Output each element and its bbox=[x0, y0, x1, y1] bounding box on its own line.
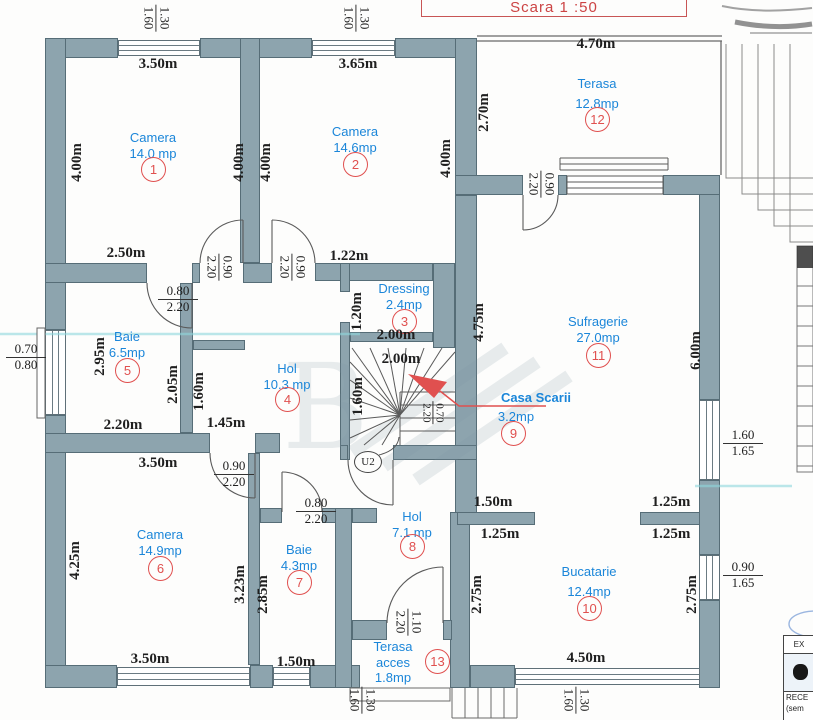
room-number-terasa-acces: 13 bbox=[425, 649, 450, 674]
stamp-ellipse bbox=[789, 611, 813, 637]
wall bbox=[470, 665, 515, 688]
dim-sufragerie-right: 6.00m bbox=[687, 318, 705, 382]
callout-door-camera6: 0.902.20 bbox=[214, 459, 254, 489]
wall bbox=[45, 415, 66, 688]
callout-door-camera1: 0.902.20 bbox=[202, 243, 236, 291]
dim-baie7-bottom: 1.50m bbox=[258, 654, 334, 671]
callout-door-sufragerie: 0.902.20 bbox=[524, 160, 558, 208]
wall bbox=[45, 665, 117, 688]
room-number-camera1: 1 bbox=[141, 157, 166, 182]
terrace-door-steps bbox=[560, 158, 668, 194]
dim-baie5-mid: 2.05m bbox=[164, 355, 182, 413]
room-number-bucatarie: 10 bbox=[577, 596, 602, 621]
room-number-sufragerie: 11 bbox=[586, 343, 611, 368]
dim-kitchen-right: 2.75m bbox=[683, 566, 701, 622]
dim-kitchen-left: 2.75m bbox=[468, 566, 486, 622]
dim-hol4-left: 1.60m bbox=[190, 365, 208, 417]
dim-baie5-left: 2.95m bbox=[91, 324, 109, 388]
dim-cam2-bottom: 1.22m bbox=[311, 248, 387, 265]
window bbox=[117, 667, 250, 686]
wall bbox=[45, 263, 147, 283]
wall bbox=[315, 263, 433, 281]
dim-dressing-left: 1.20m bbox=[348, 287, 366, 335]
room-number-camera6: 6 bbox=[148, 556, 173, 581]
stair-marker-u2: U2 bbox=[354, 451, 382, 473]
dim-cam6-left: 4.25m bbox=[66, 528, 84, 592]
dim-cam2-left: 4.00m bbox=[257, 130, 275, 194]
callout-door-camera2: 0.902.20 bbox=[275, 243, 309, 291]
title-block: EX RECE (sem bbox=[783, 635, 813, 720]
callout-window-bottom1: 1.301.60 bbox=[345, 676, 379, 720]
dim-sufragerie-left: 4.75m bbox=[470, 290, 488, 354]
dim-kitchen-stub-bl: 1.25m bbox=[462, 526, 538, 543]
callout-window-right2: 0.901.65 bbox=[723, 560, 763, 590]
title-block-line2: (sem bbox=[784, 703, 813, 714]
dim-kitchen-bottom: 4.50m bbox=[548, 650, 624, 667]
window bbox=[515, 668, 700, 685]
wall bbox=[558, 175, 567, 195]
room-label-casa-scarii: Casa Scarii bbox=[481, 390, 591, 406]
dim-cam1-bottom: 2.50m bbox=[88, 245, 164, 262]
dim-terasa-top: 4.70m bbox=[558, 36, 634, 53]
room-number-casa-scarii: 9 bbox=[501, 421, 526, 446]
dim-cam6-top: 3.50m bbox=[120, 455, 196, 472]
dim-hol4-bottom: 1.45m bbox=[188, 415, 264, 432]
room-number-baie5: 5 bbox=[115, 358, 140, 383]
wall bbox=[640, 512, 700, 525]
wall bbox=[455, 195, 477, 525]
room-label-bucatarie: Bucatarie12.4mp bbox=[539, 564, 639, 599]
wall bbox=[45, 433, 210, 453]
window bbox=[699, 555, 720, 600]
room-number-terasa12: 12 bbox=[585, 107, 610, 132]
dim-terasa-left: 2.70m bbox=[475, 80, 493, 144]
room-label-dressing: Dressing2.4mp bbox=[354, 281, 454, 312]
wall bbox=[192, 263, 200, 283]
wall bbox=[260, 508, 282, 523]
dim-stair-left: 1.60m bbox=[349, 368, 367, 424]
wall bbox=[352, 620, 387, 640]
dim-baie5-bottom: 2.20m bbox=[85, 417, 161, 434]
callout-stair-door: 0.702.20 bbox=[416, 389, 450, 437]
wall bbox=[255, 433, 280, 453]
dim-cam2-right: 4.00m bbox=[437, 126, 455, 190]
callout-door-baie7: 0.802.20 bbox=[296, 496, 336, 526]
wall bbox=[243, 263, 272, 283]
room-label-camera6: Camera14.9mp bbox=[110, 527, 210, 558]
window bbox=[699, 400, 720, 480]
dim-baie7-left: 2.85m bbox=[254, 564, 272, 624]
floor-plan: Scara 1 :50 bbox=[0, 0, 813, 720]
dim-cam1-right: 4.00m bbox=[230, 130, 248, 194]
callout-door-terasa-acces: 1.102.20 bbox=[391, 598, 425, 646]
callout-window-left: 0.700.80 bbox=[6, 342, 46, 372]
dim-kitchen-stub-tr: 1.25m bbox=[633, 494, 709, 511]
window bbox=[45, 330, 66, 415]
wall bbox=[699, 480, 720, 555]
dim-kitchen-stub-tl: 1.50m bbox=[455, 494, 531, 511]
stamp-icon bbox=[793, 664, 808, 680]
terasa-steps-icon bbox=[726, 44, 813, 242]
wall bbox=[455, 38, 477, 195]
dim-cam6-right: 3.23m bbox=[231, 554, 249, 614]
dim-kitchen-stub-br: 1.25m bbox=[633, 526, 709, 543]
callout-window-top1: 1.301.60 bbox=[139, 0, 173, 42]
wall bbox=[455, 175, 523, 195]
callout-door-baie5: 0.802.20 bbox=[158, 284, 198, 314]
title-block-line1: RECE bbox=[784, 692, 813, 703]
wall bbox=[663, 175, 720, 195]
dim-top-cam2: 3.65m bbox=[320, 56, 396, 73]
stamp-cell bbox=[784, 654, 813, 692]
window bbox=[312, 40, 395, 56]
right-edge-ladder-icon bbox=[797, 246, 813, 472]
wall bbox=[699, 600, 720, 688]
title-block-header: EX bbox=[784, 636, 813, 654]
room-label-camera2: Camera14.6mp bbox=[305, 124, 405, 155]
dim-dressing-bottom: 2.00m bbox=[358, 327, 434, 344]
dim-top-cam1: 3.50m bbox=[120, 56, 196, 73]
wall bbox=[335, 508, 352, 688]
dim-cam1-left: 4.00m bbox=[68, 130, 86, 194]
wall bbox=[393, 445, 477, 460]
dim-cam6-bottom: 3.50m bbox=[112, 651, 188, 668]
wall bbox=[457, 512, 535, 525]
room-number-camera2: 2 bbox=[343, 152, 368, 177]
room-number-hol4: 4 bbox=[275, 387, 300, 412]
wall bbox=[45, 38, 66, 330]
callout-window-top2: 1.301.60 bbox=[339, 0, 373, 42]
wall bbox=[340, 445, 348, 460]
room-number-baie7: 7 bbox=[287, 570, 312, 595]
room-label-terasa12: Terasa12.8mp bbox=[547, 76, 647, 111]
scale-box: Scara 1 :50 bbox=[421, 0, 687, 17]
wall bbox=[443, 620, 452, 640]
scan-smudges bbox=[722, 6, 812, 33]
callout-window-right1: 1.601.65 bbox=[723, 428, 763, 458]
room-number-hol8: 8 bbox=[400, 534, 425, 559]
window bbox=[118, 40, 200, 56]
dim-stair-top: 2.00m bbox=[363, 351, 439, 368]
wall bbox=[193, 340, 245, 350]
room-label-sufragerie: Sufragerie27.0mp bbox=[548, 314, 648, 345]
callout-window-bottom2: 1.301.60 bbox=[559, 676, 593, 720]
